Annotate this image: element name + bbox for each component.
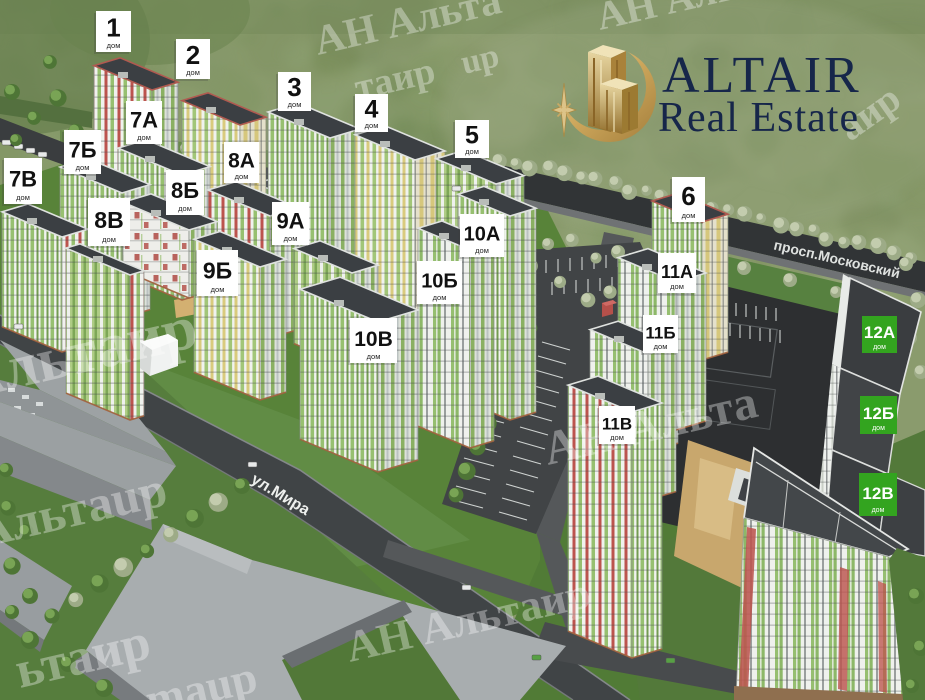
svg-text:дом: дом [102,235,116,244]
svg-text:3: 3 [287,72,301,102]
svg-text:7А: 7А [130,108,158,133]
svg-text:11Б: 11Б [645,324,675,343]
svg-text:Real Estate: Real Estate [658,95,859,141]
svg-text:дом: дом [682,211,696,220]
svg-text:дом: дом [107,41,121,50]
svg-text:дом: дом [610,433,624,442]
svg-text:7В: 7В [9,167,37,192]
svg-text:дом: дом [284,234,298,243]
svg-text:дом: дом [873,344,886,351]
svg-text:10Б: 10Б [421,271,458,293]
svg-text:4: 4 [365,96,379,124]
svg-text:12А: 12А [864,323,895,342]
svg-text:дом: дом [367,352,381,361]
svg-text:10А: 10А [464,224,501,246]
svg-text:дом: дом [654,342,668,351]
svg-text:2: 2 [186,40,200,70]
svg-text:8А: 8А [228,149,255,172]
svg-text:дом: дом [475,246,489,255]
svg-text:дом: дом [288,100,302,109]
svg-text:11А: 11А [661,262,693,282]
svg-text:дом: дом [872,507,885,514]
svg-text:12Б: 12Б [863,404,894,423]
svg-text:8Б: 8Б [171,178,199,203]
svg-text:12В: 12В [862,484,893,503]
svg-text:дом: дом [211,285,225,294]
svg-text:6: 6 [681,181,695,211]
svg-text:5: 5 [465,122,479,150]
svg-text:10В: 10В [354,328,393,351]
svg-text:дом: дом [872,425,885,432]
svg-text:9Б: 9Б [203,258,232,284]
svg-text:дом: дом [465,147,479,156]
svg-text:дом: дом [670,282,684,291]
svg-text:9А: 9А [276,209,304,234]
svg-text:дом: дом [178,204,192,213]
svg-text:дом: дом [16,193,30,202]
svg-text:дом: дом [186,68,200,77]
svg-text:дом: дом [76,163,90,172]
svg-text:дом: дом [137,133,151,142]
svg-text:дом: дом [235,172,249,181]
svg-text:дом: дом [433,293,447,302]
svg-text:дом: дом [365,121,379,130]
svg-text:1: 1 [106,12,120,42]
svg-text:7Б: 7Б [68,137,96,162]
svg-text:11В: 11В [602,415,632,434]
svg-text:8В: 8В [94,207,123,233]
